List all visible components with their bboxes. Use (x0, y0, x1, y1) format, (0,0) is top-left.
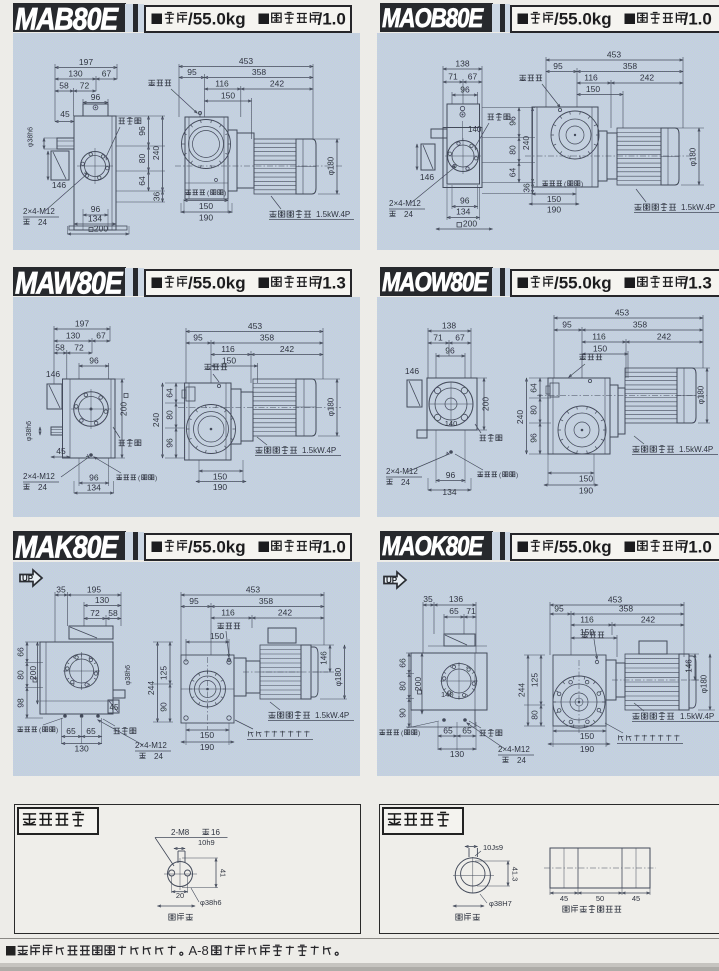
svg-text:95: 95 (189, 596, 199, 606)
svg-text:41: 41 (219, 869, 228, 877)
svg-text:150: 150 (221, 91, 235, 101)
svg-text:): ) (418, 730, 420, 737)
svg-text:200: 200 (119, 402, 129, 416)
svg-text:80: 80 (530, 710, 540, 720)
svg-text:240: 240 (151, 413, 161, 427)
svg-text:41.3: 41.3 (511, 867, 520, 882)
svg-text:242: 242 (280, 344, 294, 354)
svg-text:24: 24 (404, 210, 413, 219)
svg-text:/55.0kg: /55.0kg (554, 537, 612, 556)
svg-text:φ180: φ180 (697, 385, 706, 404)
svg-text:244: 244 (146, 681, 156, 695)
svg-text:190: 190 (547, 205, 561, 215)
svg-text:96: 96 (460, 85, 470, 95)
svg-text:): ) (155, 475, 157, 482)
svg-text:190: 190 (200, 742, 214, 752)
svg-text:146: 146 (405, 366, 419, 376)
svg-text:138: 138 (455, 59, 469, 69)
svg-text:200: 200 (481, 397, 491, 411)
svg-text:45: 45 (110, 703, 119, 712)
svg-text:10h9: 10h9 (198, 838, 215, 847)
svg-text:(: ( (401, 730, 404, 737)
svg-text:58: 58 (108, 608, 118, 618)
svg-text:150: 150 (579, 474, 593, 484)
svg-text:φ38h6: φ38h6 (26, 421, 33, 441)
svg-text:130: 130 (75, 744, 89, 754)
svg-text:134: 134 (87, 483, 101, 493)
svg-text:242: 242 (641, 615, 655, 625)
svg-text:242: 242 (640, 73, 654, 83)
svg-text:200: 200 (413, 677, 423, 691)
svg-text:64: 64 (529, 383, 539, 393)
svg-text:72: 72 (90, 608, 100, 618)
svg-text:116: 116 (221, 608, 235, 618)
svg-text:65: 65 (462, 726, 472, 736)
svg-text:80: 80 (398, 681, 408, 691)
svg-text:65: 65 (443, 726, 453, 736)
svg-text:150: 150 (586, 84, 600, 94)
svg-text:/1.3: /1.3 (683, 273, 711, 292)
svg-text:190: 190 (580, 744, 594, 754)
svg-text:95: 95 (187, 67, 197, 77)
svg-text:130: 130 (68, 69, 82, 79)
svg-text:): ) (224, 190, 226, 197)
svg-text:200: 200 (463, 219, 477, 229)
svg-text:45: 45 (560, 894, 568, 903)
svg-text:67: 67 (102, 69, 112, 79)
svg-text:65: 65 (86, 726, 96, 736)
svg-text:98: 98 (16, 698, 26, 708)
svg-text:80: 80 (165, 410, 175, 420)
svg-text:10Js9: 10Js9 (483, 843, 503, 852)
svg-text:150: 150 (580, 731, 594, 741)
svg-text:(: ( (207, 190, 210, 197)
svg-text:(: ( (39, 727, 42, 734)
svg-text:146: 146 (52, 180, 66, 190)
svg-text:80: 80 (529, 405, 539, 415)
svg-text:A-8: A-8 (189, 943, 209, 958)
svg-text:200: 200 (28, 666, 38, 680)
svg-text:2×4-M12: 2×4-M12 (23, 472, 55, 481)
svg-text:80: 80 (137, 154, 147, 164)
svg-text:95: 95 (193, 333, 203, 343)
svg-text:/1.0: /1.0 (317, 537, 345, 556)
svg-text:96: 96 (89, 356, 99, 366)
svg-text:65: 65 (66, 726, 76, 736)
svg-text:(: ( (138, 475, 141, 482)
svg-text:197: 197 (75, 319, 89, 329)
svg-text:φ180: φ180 (700, 674, 709, 693)
svg-text:/1.0: /1.0 (317, 9, 345, 28)
svg-text:190: 190 (199, 213, 213, 223)
svg-text:66: 66 (398, 658, 408, 668)
svg-text:125: 125 (159, 666, 169, 680)
svg-text:150: 150 (547, 194, 561, 204)
svg-text:φ180: φ180 (689, 147, 698, 166)
svg-text:/55.0kg: /55.0kg (188, 537, 246, 556)
svg-text:φ180: φ180 (327, 397, 336, 416)
svg-text:96: 96 (508, 116, 518, 126)
svg-text:71: 71 (466, 606, 476, 616)
svg-text:72: 72 (74, 343, 84, 353)
svg-text:/1.0: /1.0 (683, 537, 711, 556)
svg-text:90: 90 (398, 708, 408, 718)
svg-text:/1.3: /1.3 (317, 273, 345, 292)
svg-text:2×4-M12: 2×4-M12 (389, 199, 421, 208)
svg-text:140: 140 (445, 419, 458, 428)
svg-text:24: 24 (154, 752, 163, 761)
svg-text:95: 95 (553, 61, 563, 71)
svg-text:240: 240 (521, 136, 531, 150)
svg-text:453: 453 (246, 585, 260, 595)
svg-text:24: 24 (38, 483, 47, 492)
svg-text:67: 67 (468, 72, 478, 82)
svg-text:36: 36 (522, 183, 532, 193)
svg-text:64: 64 (165, 388, 175, 398)
svg-text:/55.0kg: /55.0kg (188, 273, 246, 292)
svg-text:): ) (516, 472, 518, 479)
svg-text:67: 67 (96, 331, 106, 341)
svg-text:2×4-M12: 2×4-M12 (23, 207, 55, 216)
svg-text:71: 71 (448, 72, 458, 82)
svg-text:/55.0kg: /55.0kg (188, 9, 246, 28)
svg-text:45: 45 (56, 446, 66, 456)
svg-text:64: 64 (137, 176, 147, 186)
svg-text:2-M8: 2-M8 (171, 828, 190, 837)
svg-text:240: 240 (151, 146, 161, 160)
svg-text:358: 358 (259, 596, 273, 606)
svg-text:1.5kW.4P: 1.5kW.4P (679, 445, 713, 454)
svg-text:116: 116 (592, 332, 606, 342)
svg-text:453: 453 (248, 321, 262, 331)
svg-text:36: 36 (152, 192, 162, 202)
svg-text:358: 358 (633, 320, 647, 330)
svg-text:244: 244 (517, 683, 527, 697)
svg-text:136: 136 (449, 594, 463, 604)
svg-text:358: 358 (619, 604, 633, 614)
svg-text:358: 358 (623, 61, 637, 71)
svg-text:146: 146 (685, 659, 694, 673)
svg-text:197: 197 (79, 57, 93, 67)
svg-text:140: 140 (468, 125, 482, 134)
svg-text:64: 64 (508, 168, 518, 178)
svg-text:35: 35 (56, 585, 66, 595)
svg-text:453: 453 (615, 308, 629, 318)
svg-text:24: 24 (401, 478, 410, 487)
svg-text:96: 96 (445, 346, 455, 356)
svg-text:190: 190 (213, 482, 227, 492)
svg-text:58: 58 (55, 343, 65, 353)
svg-text:65: 65 (449, 606, 459, 616)
svg-text:80: 80 (508, 145, 518, 155)
svg-text:116: 116 (584, 73, 598, 83)
svg-text:φ38h6: φ38h6 (28, 127, 35, 147)
svg-text:453: 453 (239, 56, 253, 66)
svg-text:φ180: φ180 (334, 667, 343, 686)
svg-text:1.5kW.4P: 1.5kW.4P (302, 446, 336, 455)
svg-text:2×4-M12: 2×4-M12 (498, 745, 530, 754)
svg-text:125: 125 (530, 673, 540, 687)
svg-text:67: 67 (455, 333, 465, 343)
svg-text:20: 20 (176, 891, 184, 900)
svg-text:80: 80 (16, 670, 26, 680)
svg-text:150: 150 (213, 472, 227, 482)
svg-text:φ180: φ180 (327, 156, 336, 175)
svg-text:242: 242 (278, 608, 292, 618)
svg-text:96: 96 (446, 470, 456, 480)
svg-text:242: 242 (270, 79, 284, 89)
svg-text:242: 242 (657, 332, 671, 342)
svg-text:116: 116 (580, 615, 594, 625)
svg-text:): ) (56, 727, 58, 734)
svg-text:96: 96 (89, 473, 99, 483)
svg-text:1.5kW.4P: 1.5kW.4P (680, 712, 714, 721)
svg-text:96: 96 (91, 92, 101, 102)
svg-text:96: 96 (91, 204, 101, 214)
svg-text:90: 90 (159, 702, 169, 712)
svg-text:146: 146 (320, 651, 329, 665)
svg-text:150: 150 (210, 631, 224, 641)
svg-text:1.5kW.4P: 1.5kW.4P (316, 210, 350, 219)
svg-text:134: 134 (456, 207, 470, 217)
svg-text:(: ( (499, 472, 502, 479)
svg-text:95: 95 (554, 604, 564, 614)
svg-text:φ38H7: φ38H7 (489, 899, 512, 908)
svg-text:/55.0kg: /55.0kg (554, 273, 612, 292)
svg-text:130: 130 (450, 749, 464, 759)
svg-text:150: 150 (199, 201, 213, 211)
svg-text:UP: UP (22, 574, 34, 583)
svg-text:φ38h6: φ38h6 (200, 898, 222, 907)
svg-text:190: 190 (579, 486, 593, 496)
svg-text:146: 146 (46, 369, 60, 379)
svg-text:45: 45 (60, 109, 70, 119)
svg-text:16: 16 (211, 828, 220, 837)
svg-text:150: 150 (593, 344, 607, 354)
svg-text:453: 453 (607, 50, 621, 60)
svg-text:240: 240 (515, 410, 525, 424)
svg-text:116: 116 (215, 79, 229, 89)
svg-text:96: 96 (460, 196, 470, 206)
svg-text:71: 71 (433, 333, 443, 343)
svg-text:130: 130 (66, 331, 80, 341)
svg-text:): ) (581, 181, 583, 188)
svg-text:45: 45 (632, 894, 640, 903)
svg-text:96: 96 (137, 126, 147, 136)
svg-text:24: 24 (517, 756, 526, 765)
svg-text:96: 96 (529, 433, 539, 443)
svg-text:200: 200 (94, 224, 108, 234)
svg-text:50: 50 (596, 894, 604, 903)
svg-text:1.5kW.4P: 1.5kW.4P (681, 203, 715, 212)
svg-text:358: 358 (260, 333, 274, 343)
svg-text:2×4-M12: 2×4-M12 (386, 467, 418, 476)
svg-text:96: 96 (165, 438, 175, 448)
svg-text:24: 24 (38, 218, 47, 227)
svg-text:358: 358 (252, 67, 266, 77)
svg-text:58: 58 (59, 81, 69, 91)
svg-text:150: 150 (200, 730, 214, 740)
svg-text:φ38h6: φ38h6 (125, 665, 132, 685)
svg-text:134: 134 (88, 214, 102, 224)
svg-text:140: 140 (441, 690, 454, 699)
svg-text:146: 146 (420, 172, 434, 182)
svg-text:72: 72 (80, 81, 90, 91)
svg-text:1.5kW.4P: 1.5kW.4P (315, 711, 349, 720)
svg-text:195: 195 (87, 585, 101, 595)
svg-text:UP: UP (386, 576, 398, 585)
svg-text:130: 130 (95, 595, 109, 605)
svg-text:/1.0: /1.0 (683, 9, 711, 28)
svg-text:2×4-M12: 2×4-M12 (135, 741, 167, 750)
svg-text:134: 134 (442, 487, 456, 497)
svg-text:116: 116 (221, 344, 235, 354)
svg-text:/55.0kg: /55.0kg (554, 9, 612, 28)
svg-text:66: 66 (16, 647, 26, 657)
svg-text:95: 95 (562, 320, 572, 330)
svg-text:35: 35 (423, 594, 433, 604)
svg-text:138: 138 (442, 321, 456, 331)
